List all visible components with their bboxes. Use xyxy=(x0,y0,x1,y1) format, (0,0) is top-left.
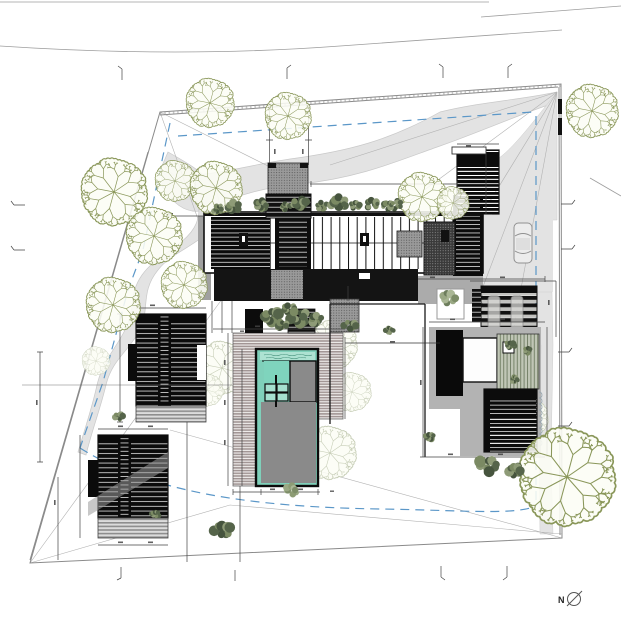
svg-text:N: N xyxy=(558,595,565,605)
